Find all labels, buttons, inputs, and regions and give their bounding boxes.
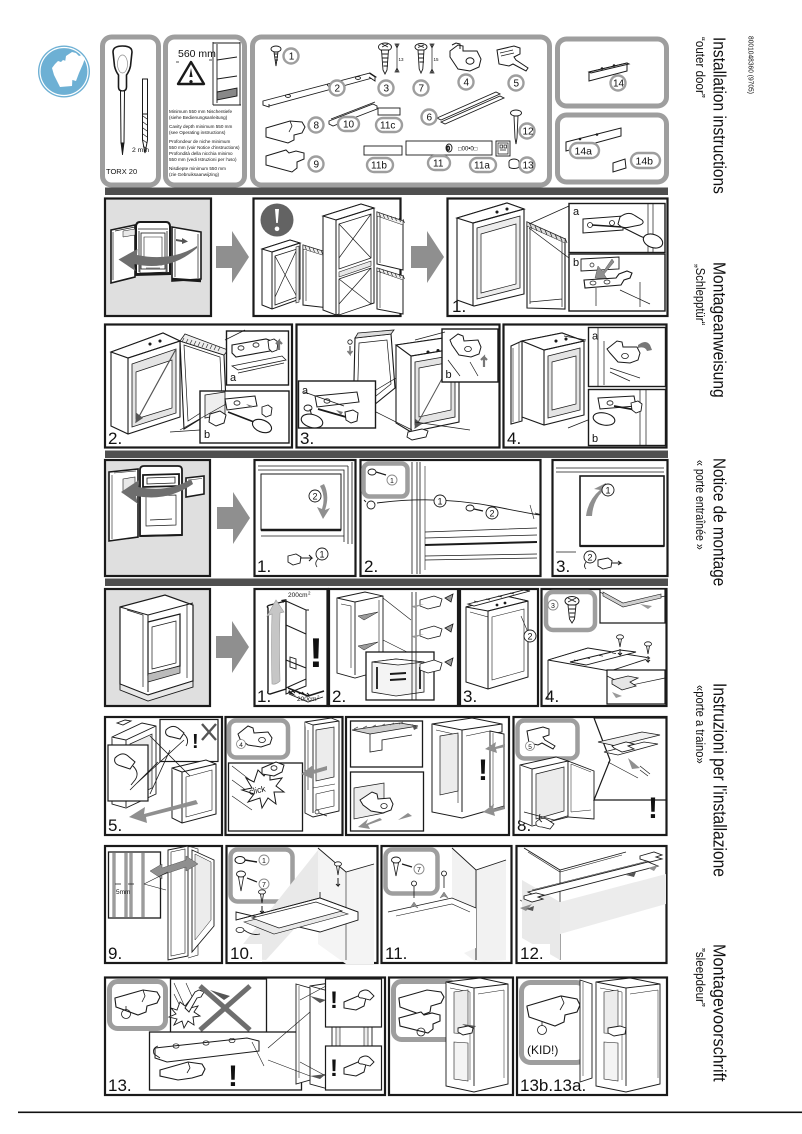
svg-text:2: 2 — [588, 553, 593, 563]
svg-text:(KID!): (KID!) — [527, 1043, 558, 1057]
svg-text:11.: 11. — [385, 944, 407, 963]
svg-text:560 mm: 560 mm — [178, 48, 216, 60]
svg-text:« porte entraînée »: « porte entraînée » — [693, 460, 707, 550]
svg-text:10.: 10. — [230, 944, 254, 963]
svg-text:9.: 9. — [108, 944, 122, 963]
svg-text:6: 6 — [427, 113, 433, 124]
svg-text:2: 2 — [490, 509, 495, 519]
svg-text:(siehe Bedienungsanleitung): (siehe Bedienungsanleitung) — [169, 115, 228, 120]
svg-text:4.: 4. — [545, 687, 559, 706]
svg-text:!: ! — [478, 754, 488, 787]
svg-text:14a: 14a — [575, 145, 593, 157]
svg-text:3: 3 — [551, 603, 555, 610]
svg-text:13: 13 — [523, 161, 535, 172]
svg-text:8001048360 (9705): 8001048360 (9705) — [746, 36, 753, 94]
svg-text:7: 7 — [419, 84, 425, 95]
svg-text:7: 7 — [417, 867, 421, 874]
svg-text:3.: 3. — [463, 687, 477, 706]
svg-text:1: 1 — [320, 550, 325, 560]
svg-text:(see Operating instructions): (see Operating instructions) — [169, 130, 226, 135]
svg-text:4.: 4. — [507, 429, 521, 448]
svg-text:Montageanweisung: Montageanweisung — [709, 262, 729, 398]
svg-text:550 mm (voir Notice d'instruct: 550 mm (voir Notice d'instructions) — [169, 145, 240, 150]
svg-text:1.: 1. — [257, 687, 271, 706]
svg-text:a: a — [302, 385, 309, 397]
svg-text:5.: 5. — [108, 816, 122, 835]
svg-text:Montagevoorschrift: Montagevoorschrift — [709, 944, 729, 1082]
svg-text:(zie Gebruiksaanwijzing): (zie Gebruiksaanwijzing) — [169, 172, 220, 177]
svg-text:Profondità della nicchia minim: Profondità della nicchia minimo — [169, 151, 233, 156]
svg-text:“outer door”: “outer door” — [693, 37, 707, 98]
svg-text:a: a — [230, 372, 237, 384]
svg-text:b: b — [204, 429, 210, 441]
svg-text:Installation instructions: Installation instructions — [709, 37, 729, 194]
svg-text:!: ! — [330, 1055, 338, 1082]
svg-text:13: 13 — [399, 57, 405, 62]
svg-text:11b: 11b — [371, 161, 387, 172]
svg-text:3.: 3. — [556, 557, 570, 576]
svg-text:10: 10 — [343, 120, 355, 131]
svg-text:5: 5 — [514, 79, 520, 90]
svg-text:1.: 1. — [257, 557, 271, 576]
svg-text:5: 5 — [528, 744, 532, 751]
svg-text:b: b — [446, 369, 452, 381]
svg-text:1: 1 — [438, 497, 443, 507]
svg-text:7: 7 — [262, 882, 266, 889]
svg-text:!: ! — [330, 987, 338, 1014]
svg-text:!: ! — [192, 731, 199, 753]
svg-text:11a: 11a — [474, 161, 490, 172]
svg-text:„Schlepptür“: „Schlepptür“ — [693, 264, 708, 325]
svg-text:5mm: 5mm — [116, 889, 130, 896]
svg-text:!: ! — [648, 792, 658, 825]
svg-text:12.: 12. — [520, 944, 544, 963]
svg-text:!: ! — [228, 1060, 238, 1093]
svg-text:Instruzioni per l'installazion: Instruzioni per l'installazione — [709, 683, 729, 877]
svg-text:11: 11 — [433, 159, 444, 170]
svg-text:2: 2 — [313, 492, 318, 502]
svg-text:3: 3 — [384, 84, 390, 95]
svg-text:12: 12 — [523, 127, 535, 138]
svg-text:4: 4 — [464, 78, 470, 89]
svg-text:2.: 2. — [364, 557, 378, 576]
svg-text:a: a — [573, 206, 580, 218]
svg-text:550 mm (vedi Istruzioni per l': 550 mm (vedi Istruzioni per l'uso) — [169, 157, 237, 162]
svg-text:«porte a traino»: «porte a traino» — [693, 685, 708, 764]
svg-text:3.: 3. — [300, 429, 314, 448]
svg-text:Notice de montage: Notice de montage — [709, 458, 729, 586]
svg-text:1: 1 — [262, 858, 266, 865]
svg-text:13.: 13. — [108, 1076, 132, 1095]
svg-text:1: 1 — [390, 478, 394, 485]
svg-text:b: b — [592, 433, 598, 445]
svg-text:TORX 20: TORX 20 — [106, 167, 137, 176]
svg-text:15: 15 — [434, 57, 440, 62]
svg-text:200cm: 200cm — [297, 696, 317, 703]
svg-text:2.: 2. — [332, 687, 346, 706]
svg-text:14: 14 — [613, 79, 625, 90]
svg-text:9: 9 — [314, 160, 320, 171]
svg-text:8: 8 — [314, 121, 320, 132]
svg-text:11c: 11c — [380, 121, 395, 132]
svg-text:2: 2 — [528, 632, 533, 642]
svg-text:1: 1 — [606, 486, 611, 496]
svg-text:Nisdiepte minimum 550 mm: Nisdiepte minimum 550 mm — [169, 166, 226, 171]
svg-text:Profondeur de niche minimum: Profondeur de niche minimum — [169, 139, 230, 144]
svg-text:2 mm: 2 mm — [132, 147, 149, 154]
svg-text:b: b — [573, 257, 579, 269]
svg-text:200cm: 200cm — [288, 592, 308, 599]
svg-text:4: 4 — [239, 742, 243, 749]
svg-text:1: 1 — [289, 52, 295, 63]
svg-text:2: 2 — [335, 84, 341, 95]
svg-text:2.: 2. — [108, 429, 122, 448]
svg-text:Minimum 550 mm Nischentiefe: Minimum 550 mm Nischentiefe — [169, 109, 233, 114]
svg-text:□00•0□: □00•0□ — [458, 147, 478, 153]
svg-text:Cavity depth minimum 550 mm: Cavity depth minimum 550 mm — [169, 124, 232, 129]
svg-text:!: ! — [309, 629, 323, 676]
svg-text:13b.13a.: 13b.13a. — [520, 1076, 586, 1095]
svg-text:14b: 14b — [636, 155, 654, 167]
svg-text:”sleepdeur”: ”sleepdeur” — [693, 948, 707, 1007]
